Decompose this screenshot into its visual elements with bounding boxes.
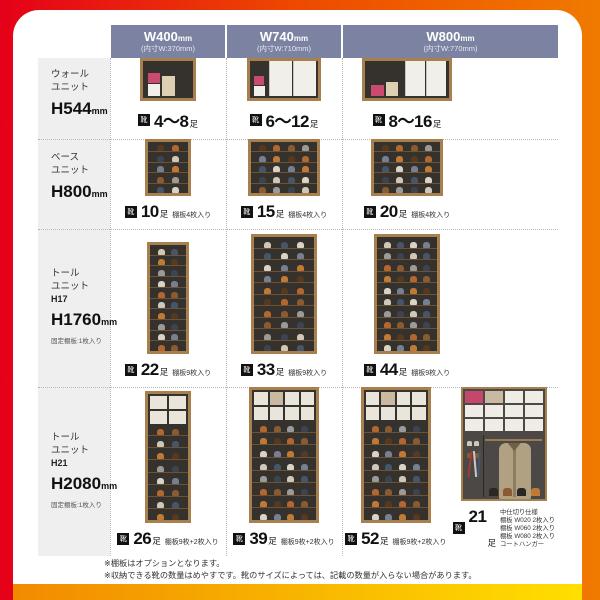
capacity-count: 15: [257, 202, 275, 222]
footnote-1: ※棚板はオプションとなります。: [104, 558, 224, 570]
fixed-shelf-note: 固定棚板:1枚入り: [51, 335, 110, 345]
row-label-base-unit: ベース ユニット H800mm: [38, 139, 110, 229]
cell-w800-tall-h21-group: 靴 52 足 棚板9枚+2枚入り: [342, 387, 558, 556]
cell-w400-tall-h17: 靴 22 足 棚板9枚入り: [110, 229, 226, 387]
partition-divider: [483, 435, 484, 497]
capacity-caption: 靴 15 足 棚板4枚入り: [241, 202, 327, 222]
cell-w740-tall-h21: 靴 39 足 棚板9枚+2枚入り: [226, 387, 342, 556]
capacity-caption: 靴 8〜16 足: [373, 107, 442, 132]
capacity-caption: 靴 44 足 棚板9枚入り: [364, 360, 450, 380]
cell-w800-wall: 靴 8〜16 足: [342, 58, 472, 139]
spec-note-line: 棚板 W020 2枚入り: [500, 517, 555, 525]
cell-w740-base: 靴 15 足 棚板4枚入り: [226, 139, 342, 229]
row-label-line: トール: [51, 431, 110, 444]
row-height: H2080mm: [51, 474, 110, 496]
capacity-count: 39: [249, 529, 267, 549]
row-height: H800mm: [51, 182, 110, 204]
door-panel: [269, 59, 292, 96]
row-model: H17: [51, 293, 110, 305]
cell-w400-wall: 靴 4〜8 足: [110, 58, 226, 139]
size-capacity-table: W400mm (内寸W:370mm) W740mm (内寸W:710mm) W8…: [38, 25, 558, 585]
shelf-note: 棚板4枚入り: [288, 210, 327, 220]
footnote-2: ※収納できる靴の数量はめやすです。靴のサイズによっては、記載の数量が入らない場合…: [104, 570, 477, 582]
shoe: [474, 441, 479, 446]
shoe-icon: 靴: [364, 364, 376, 376]
capacity-unit: 足: [380, 535, 389, 547]
shelf-note: 棚板9枚入り: [411, 368, 450, 378]
shelf-note: 棚板9枚入り: [172, 368, 211, 378]
row-label-line: トール: [51, 267, 110, 280]
row-label-line: ウォール: [51, 68, 110, 81]
row-label-line: ベース: [51, 151, 110, 164]
cabinet-image-tall-h21-w400: [145, 391, 191, 523]
cell-w800-tall-h21: 靴 52 足 棚板9枚+2枚入り: [345, 387, 446, 556]
shelf-note: 棚板9枚+2枚入り: [393, 537, 447, 547]
capacity-caption: 靴 33 足 棚板9枚入り: [241, 360, 327, 380]
shoe-box: [148, 84, 160, 96]
column-header-w740: W740mm (内寸W:710mm): [227, 25, 341, 58]
row-label-tall-h17: トール ユニット H17 H1760mm 固定棚板:1枚入り: [38, 229, 110, 387]
fixed-shelf-note: 固定棚板:1枚入り: [51, 499, 110, 509]
capacity-count: 44: [380, 360, 398, 380]
shoe-icon: 靴: [125, 364, 137, 376]
capacity-caption: 靴 22 足 棚板9枚入り: [125, 360, 211, 380]
header-inner-size: (内寸W:710mm): [227, 45, 341, 53]
header-inner-size: (内寸W:370mm): [111, 45, 225, 53]
cabinet-image-wall-w400: [140, 58, 196, 101]
cell-w800-tall-h21-partition: 靴 21 足 中仕切り仕様 棚板 W020 2枚入り 棚板 W060 2枚入り …: [453, 387, 555, 556]
shoe-icon: 靴: [364, 206, 376, 218]
catalog-page: W400mm (内寸W:370mm) W740mm (内寸W:710mm) W8…: [0, 0, 600, 600]
shoe-icon: 靴: [125, 206, 137, 218]
shoe-box: [371, 85, 384, 96]
shoe-icon: 靴: [345, 533, 357, 545]
shoe-box: [386, 82, 398, 96]
cell-w740-tall-h17: 靴 33 足 棚板9枚入り: [226, 229, 342, 387]
capacity-count: 20: [380, 202, 398, 222]
capacity-unit: 足: [276, 366, 285, 378]
cabinet-image-tall-h17-w740: [251, 234, 317, 354]
shelf-note: 棚板9枚+2枚入り: [165, 537, 219, 547]
row-label-line: ユニット: [51, 444, 110, 457]
shoe-box: [148, 73, 160, 83]
capacity-unit: 足: [189, 118, 198, 130]
header-size: W400mm: [111, 30, 225, 44]
row-label-line: ユニット: [51, 280, 110, 293]
row-label-line: ユニット: [51, 81, 110, 94]
cabinet-image-tall-h21-w740: [249, 387, 319, 523]
cabinet-image-coat-hanger: [461, 387, 547, 501]
cabinet-image-base-w400: [145, 139, 191, 196]
capacity-caption: 靴 26 足 棚板9枚+2枚入り: [117, 529, 218, 549]
capacity-unit: 足: [310, 118, 319, 130]
row-height: H1760mm: [51, 310, 110, 332]
capacity-caption: 靴 21 足 中仕切り仕様 棚板 W020 2枚入り 棚板 W060 2枚入り …: [453, 507, 555, 549]
capacity-count: 21: [469, 507, 487, 527]
capacity-unit: 足: [399, 366, 408, 378]
capacity-count: 8〜16: [389, 107, 432, 132]
boot: [517, 488, 526, 496]
column-header-w800: W800mm (内寸W:770mm): [343, 25, 558, 58]
shoe-box: [254, 86, 265, 96]
capacity-unit: 足: [160, 366, 169, 378]
capacity-count: 33: [257, 360, 275, 380]
shelf-note: 棚板4枚入り: [411, 210, 450, 220]
cell-w400-base: 靴 10 足 棚板4枚入り: [110, 139, 226, 229]
shoe: [467, 441, 472, 446]
capacity-caption: 靴 10 足 棚板4枚入り: [125, 202, 211, 222]
cabinet-image-wall-w800: [362, 58, 452, 101]
shelf-note: 棚板4枚入り: [172, 210, 211, 220]
cabinet-image-base-w800: [371, 139, 443, 196]
shoe-icon: 靴: [250, 114, 262, 126]
shoe-box-grid: [465, 391, 543, 431]
shoe-box: [162, 76, 175, 96]
capacity-caption: 靴 6〜12 足: [250, 107, 319, 132]
capacity-unit: 足: [160, 208, 169, 220]
cell-w400-tall-h21: 靴 26 足 棚板9枚+2枚入り: [110, 387, 226, 556]
shoe-icon: 靴: [233, 533, 245, 545]
capacity-count: 4〜8: [154, 107, 188, 132]
hanger-rod: [485, 439, 542, 441]
cell-w740-wall: 靴 6〜12 足: [226, 58, 342, 139]
row-height: H544mm: [51, 99, 110, 121]
boot: [503, 488, 512, 496]
capacity-unit: 足: [276, 208, 285, 220]
cabinet-image-wall-w740: [247, 58, 321, 101]
partition-spec-notes: 中仕切り仕様 棚板 W020 2枚入り 棚板 W060 2枚入り 棚板 W080…: [500, 507, 555, 549]
box-stack: [426, 58, 446, 96]
capacity-unit: 足: [268, 535, 277, 547]
capacity-count: 10: [141, 202, 159, 222]
shoe-icon: 靴: [453, 522, 465, 534]
cabinet-image-tall-h17-w800: [374, 234, 440, 354]
spec-note-line: 棚板 W080 2枚入り: [500, 533, 555, 541]
spec-note-line: コートハンガー: [500, 541, 555, 549]
capacity-caption: 靴 20 足 棚板4枚入り: [364, 202, 450, 222]
capacity-unit: 足: [399, 208, 408, 220]
cell-w800-base: 靴 20 足 棚板4枚入り: [342, 139, 472, 229]
cabinet-image-tall-h21-w800: [361, 387, 431, 523]
column-header-w400: W400mm (内寸W:370mm): [111, 25, 225, 58]
capacity-count: 26: [133, 529, 151, 549]
shoe-box: [254, 76, 264, 85]
door-panel: [293, 59, 316, 96]
capacity-caption: 靴 4〜8 足: [138, 107, 198, 132]
spec-note-line: 棚板 W060 2枚入り: [500, 525, 555, 533]
spec-card: W400mm (内寸W:370mm) W740mm (内寸W:710mm) W8…: [13, 10, 582, 584]
row-label-wall-unit: ウォール ユニット H544mm: [38, 58, 110, 139]
capacity-caption: 靴 39 足 棚板9枚+2枚入り: [233, 529, 334, 549]
shoe-icon: 靴: [241, 206, 253, 218]
cell-w800-tall-h17: 靴 44 足 棚板9枚入り: [342, 229, 472, 387]
shelf-note: 棚板9枚+2枚入り: [281, 537, 335, 547]
shoe-icon: 靴: [138, 114, 150, 126]
capacity-caption: 靴 52 足 棚板9枚+2枚入り: [345, 529, 446, 549]
row-label-tall-h21: トール ユニット H21 H2080mm 固定棚板:1枚入り: [38, 387, 110, 556]
capacity-unit: 足: [487, 537, 496, 549]
spec-note-line: 中仕切り仕様: [500, 509, 555, 517]
boot: [489, 488, 498, 496]
header-size: W800mm: [343, 30, 558, 44]
row-label-line: ユニット: [51, 164, 110, 177]
capacity-unit: 足: [433, 118, 442, 130]
shoe-icon: 靴: [373, 114, 385, 126]
shoe-icon: 靴: [241, 364, 253, 376]
box-stack: [405, 58, 425, 96]
shoe-icon: 靴: [117, 533, 129, 545]
capacity-count: 22: [141, 360, 159, 380]
shelf-note: 棚板9枚入り: [288, 368, 327, 378]
row-model: H21: [51, 457, 110, 469]
cabinet-image-tall-h17-w400: [147, 242, 189, 354]
header-size: W740mm: [227, 30, 341, 44]
capacity-count: 52: [361, 529, 379, 549]
capacity-unit: 足: [152, 535, 161, 547]
header-inner-size: (内寸W:770mm): [343, 45, 558, 53]
bottom-gradient-bar: [13, 584, 582, 600]
cabinet-image-base-w740: [248, 139, 320, 196]
boot: [531, 488, 540, 496]
capacity-count: 6〜12: [266, 107, 309, 132]
